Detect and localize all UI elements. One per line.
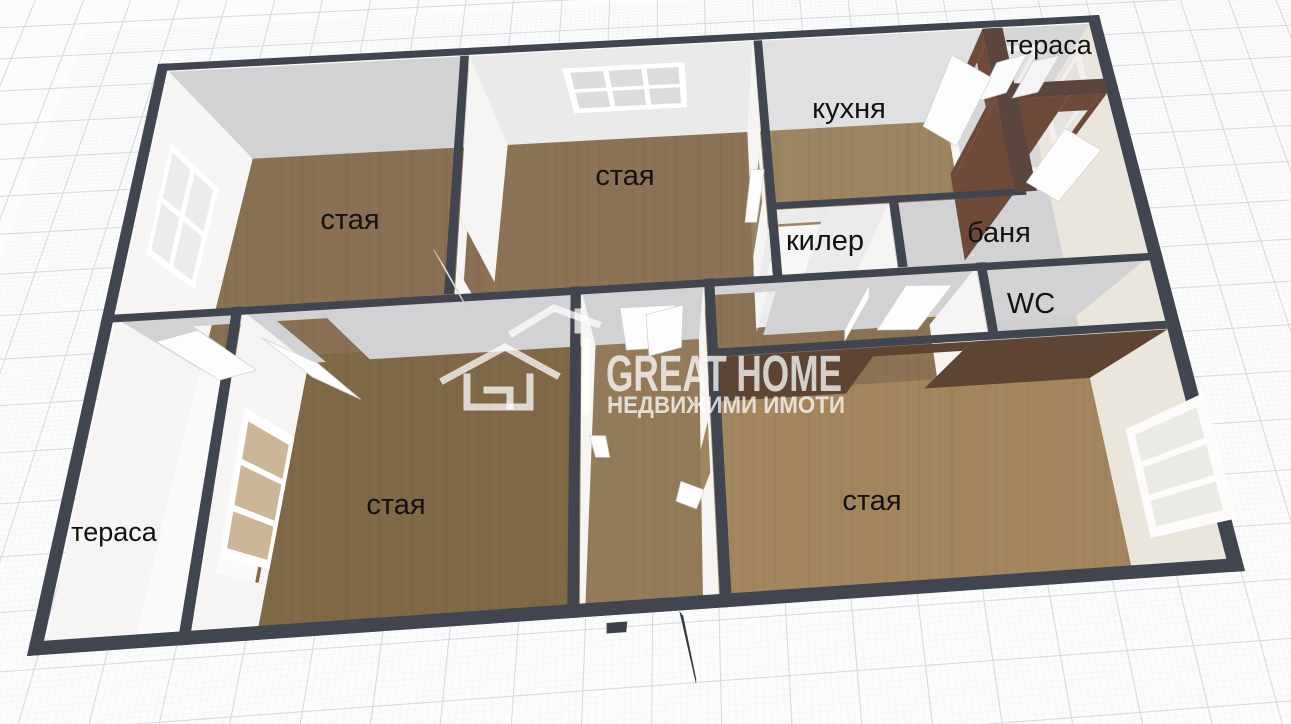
svg-text:кухня: кухня [812, 93, 886, 125]
svg-text:стая: стая [366, 489, 425, 521]
svg-text:стая: стая [842, 485, 901, 517]
svg-text:стая: стая [320, 204, 379, 236]
svg-text:стая: стая [595, 160, 654, 192]
svg-text:килер: килер [786, 225, 864, 257]
svg-text:НЕДВИЖИМИ ИМОТИ: НЕДВИЖИМИ ИМОТИ [607, 392, 845, 419]
svg-text:баня: баня [967, 217, 1031, 249]
svg-text:тераса: тераса [71, 517, 158, 547]
svg-text:WC: WC [1007, 288, 1055, 320]
svg-text:тераса: тераса [1006, 30, 1093, 60]
